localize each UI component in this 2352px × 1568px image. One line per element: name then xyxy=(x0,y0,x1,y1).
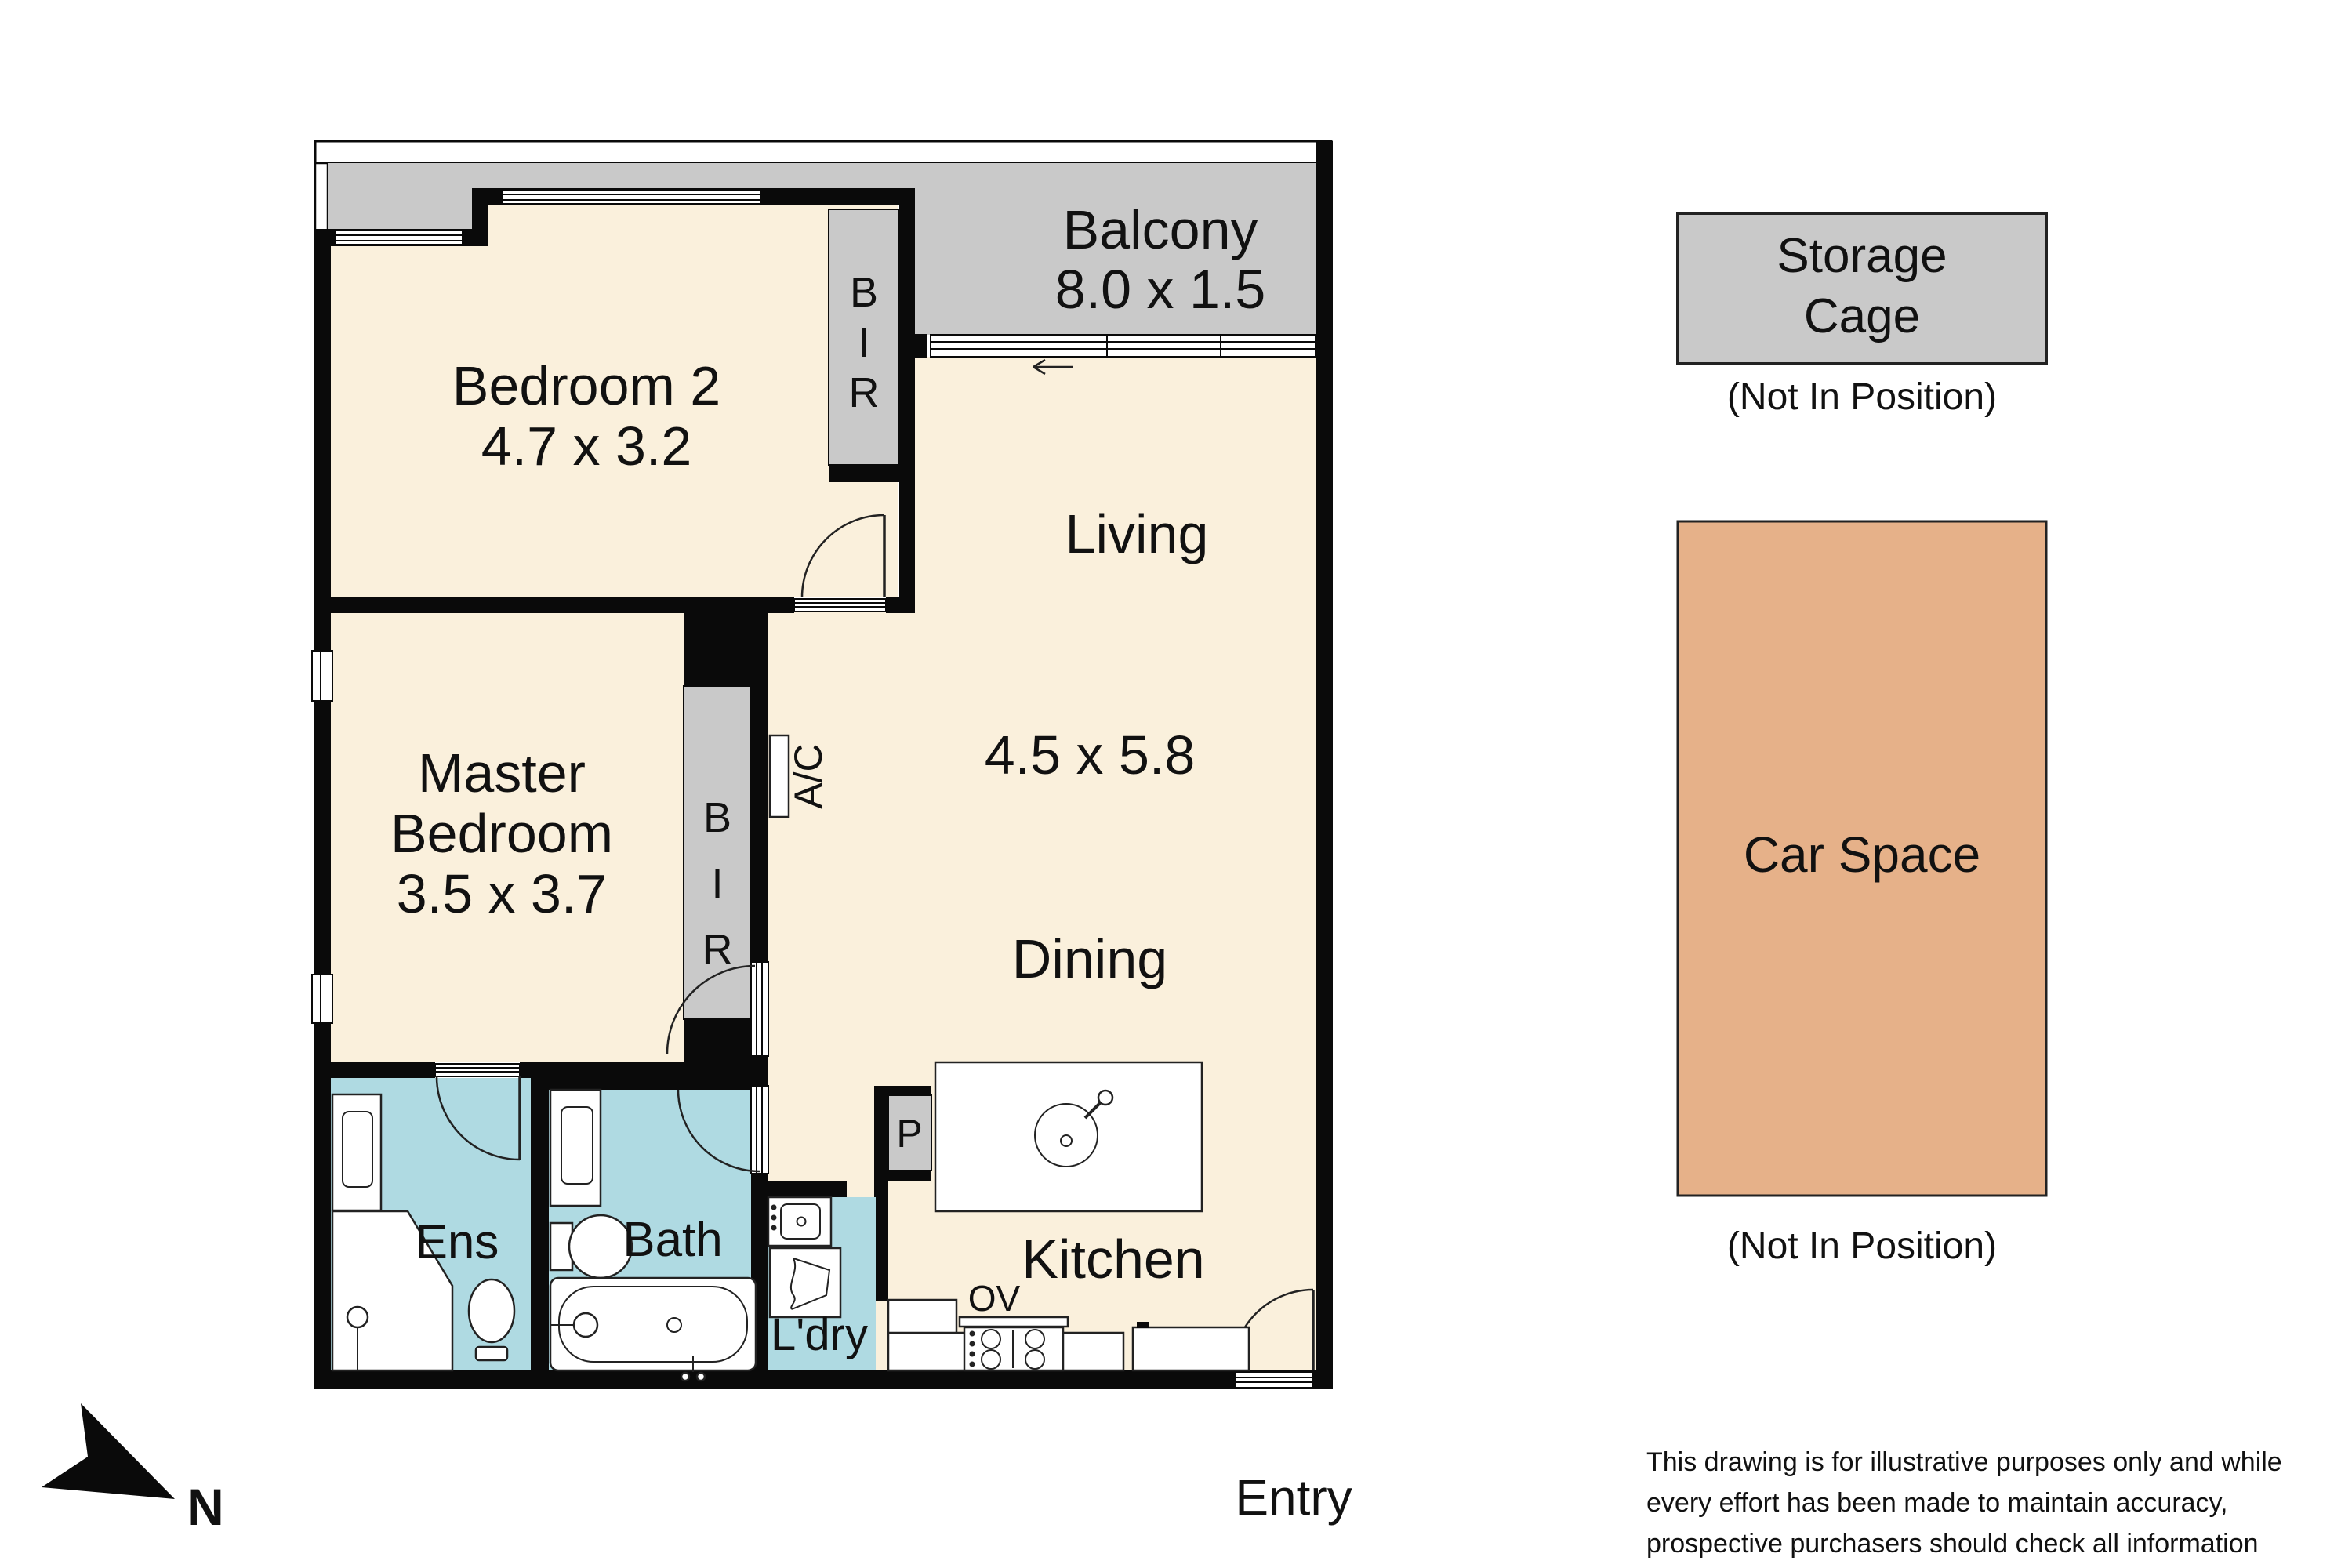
storage-cage-note: (Not In Position) xyxy=(1727,376,1997,418)
north-compass: N xyxy=(42,1403,224,1536)
bedroom2-bir-i: I xyxy=(858,319,869,366)
fridge-space xyxy=(1133,1322,1249,1370)
kitchen-label: Kitchen xyxy=(1022,1229,1204,1290)
balcony-dims: 8.0 x 1.5 xyxy=(1055,259,1266,320)
storage-cage-label-2: Cage xyxy=(1804,289,1920,343)
master-bir-b: B xyxy=(703,794,731,841)
north-arrow-icon xyxy=(42,1403,175,1499)
master-label-1: Master xyxy=(418,742,586,804)
bedroom2-bir-r: R xyxy=(849,369,880,416)
apartment-floorplan: Bedroom 2 4.7 x 3.2 Master Bedroom 3.5 x… xyxy=(42,141,1352,1536)
laundry-label: L'dry xyxy=(771,1309,868,1360)
oven-label: OV xyxy=(968,1278,1021,1319)
bedroom2-dims: 4.7 x 3.2 xyxy=(481,416,692,477)
master-dims: 3.5 x 3.7 xyxy=(397,863,608,924)
car-space-note: (Not In Position) xyxy=(1727,1225,1997,1267)
laundry-sink-icon xyxy=(768,1197,831,1246)
ensuite-door-band xyxy=(435,1064,520,1076)
vanity-icon xyxy=(332,1094,381,1210)
disclaimer-line-1: This drawing is for illustrative purpose… xyxy=(1646,1447,2282,1477)
disclaimer-line-2: every effort has been made to maintain a… xyxy=(1646,1488,2227,1518)
disclaimer-text: This drawing is for illustrative purpose… xyxy=(1646,1447,2282,1559)
bathtub-icon xyxy=(550,1278,756,1381)
disclaimer-line-3: prospective purchasers should check all … xyxy=(1646,1529,2259,1559)
toilet-icon xyxy=(469,1279,514,1360)
ensuite-label: Ens xyxy=(416,1215,499,1269)
master-bir-r: R xyxy=(702,926,733,973)
storage-cage-label-1: Storage xyxy=(1777,229,1947,283)
bathroom-label: Bath xyxy=(622,1213,723,1267)
vanity-icon xyxy=(550,1090,601,1206)
laundry-fixtures xyxy=(768,1197,840,1317)
laundry-trough-icon xyxy=(770,1248,840,1317)
ac-label: A/C xyxy=(786,743,830,808)
master-door-band xyxy=(751,962,768,1056)
floorplan-page: Bedroom 2 4.7 x 3.2 Master Bedroom 3.5 x… xyxy=(0,0,2352,1568)
dining-label: Dining xyxy=(1012,928,1167,989)
island-bench xyxy=(935,1062,1202,1211)
north-label: N xyxy=(187,1478,224,1536)
bedroom2-label: Bedroom 2 xyxy=(452,355,720,416)
bedroom2-top-window xyxy=(502,190,760,204)
bathroom-door-band xyxy=(751,1086,768,1174)
bedroom2-door-band xyxy=(794,599,886,612)
balcony-label: Balcony xyxy=(1062,199,1258,260)
cooktop-icon xyxy=(960,1317,1068,1370)
car-space-box: Car Space xyxy=(1678,521,2046,1196)
entry-label: Entry xyxy=(1235,1469,1352,1526)
storage-cage-box: Storage Cage xyxy=(1678,213,2046,364)
pantry-label: P xyxy=(896,1112,922,1156)
master-window-upper xyxy=(312,651,332,701)
living-dims: 4.5 x 5.8 xyxy=(985,724,1196,786)
entry-door-band xyxy=(1235,1372,1313,1388)
bedroom2-bir-b: B xyxy=(850,269,878,316)
living-label: Living xyxy=(1065,503,1209,564)
master-label-2: Bedroom xyxy=(390,803,613,864)
master-window-lower xyxy=(312,975,332,1023)
master-bir-i: I xyxy=(711,860,723,907)
car-space-label: Car Space xyxy=(1744,826,1980,883)
toilet-icon xyxy=(550,1215,632,1278)
side-panel: Storage Cage (Not In Position) Car Space… xyxy=(1678,213,2046,1267)
bedroom2-left-window xyxy=(336,230,463,245)
